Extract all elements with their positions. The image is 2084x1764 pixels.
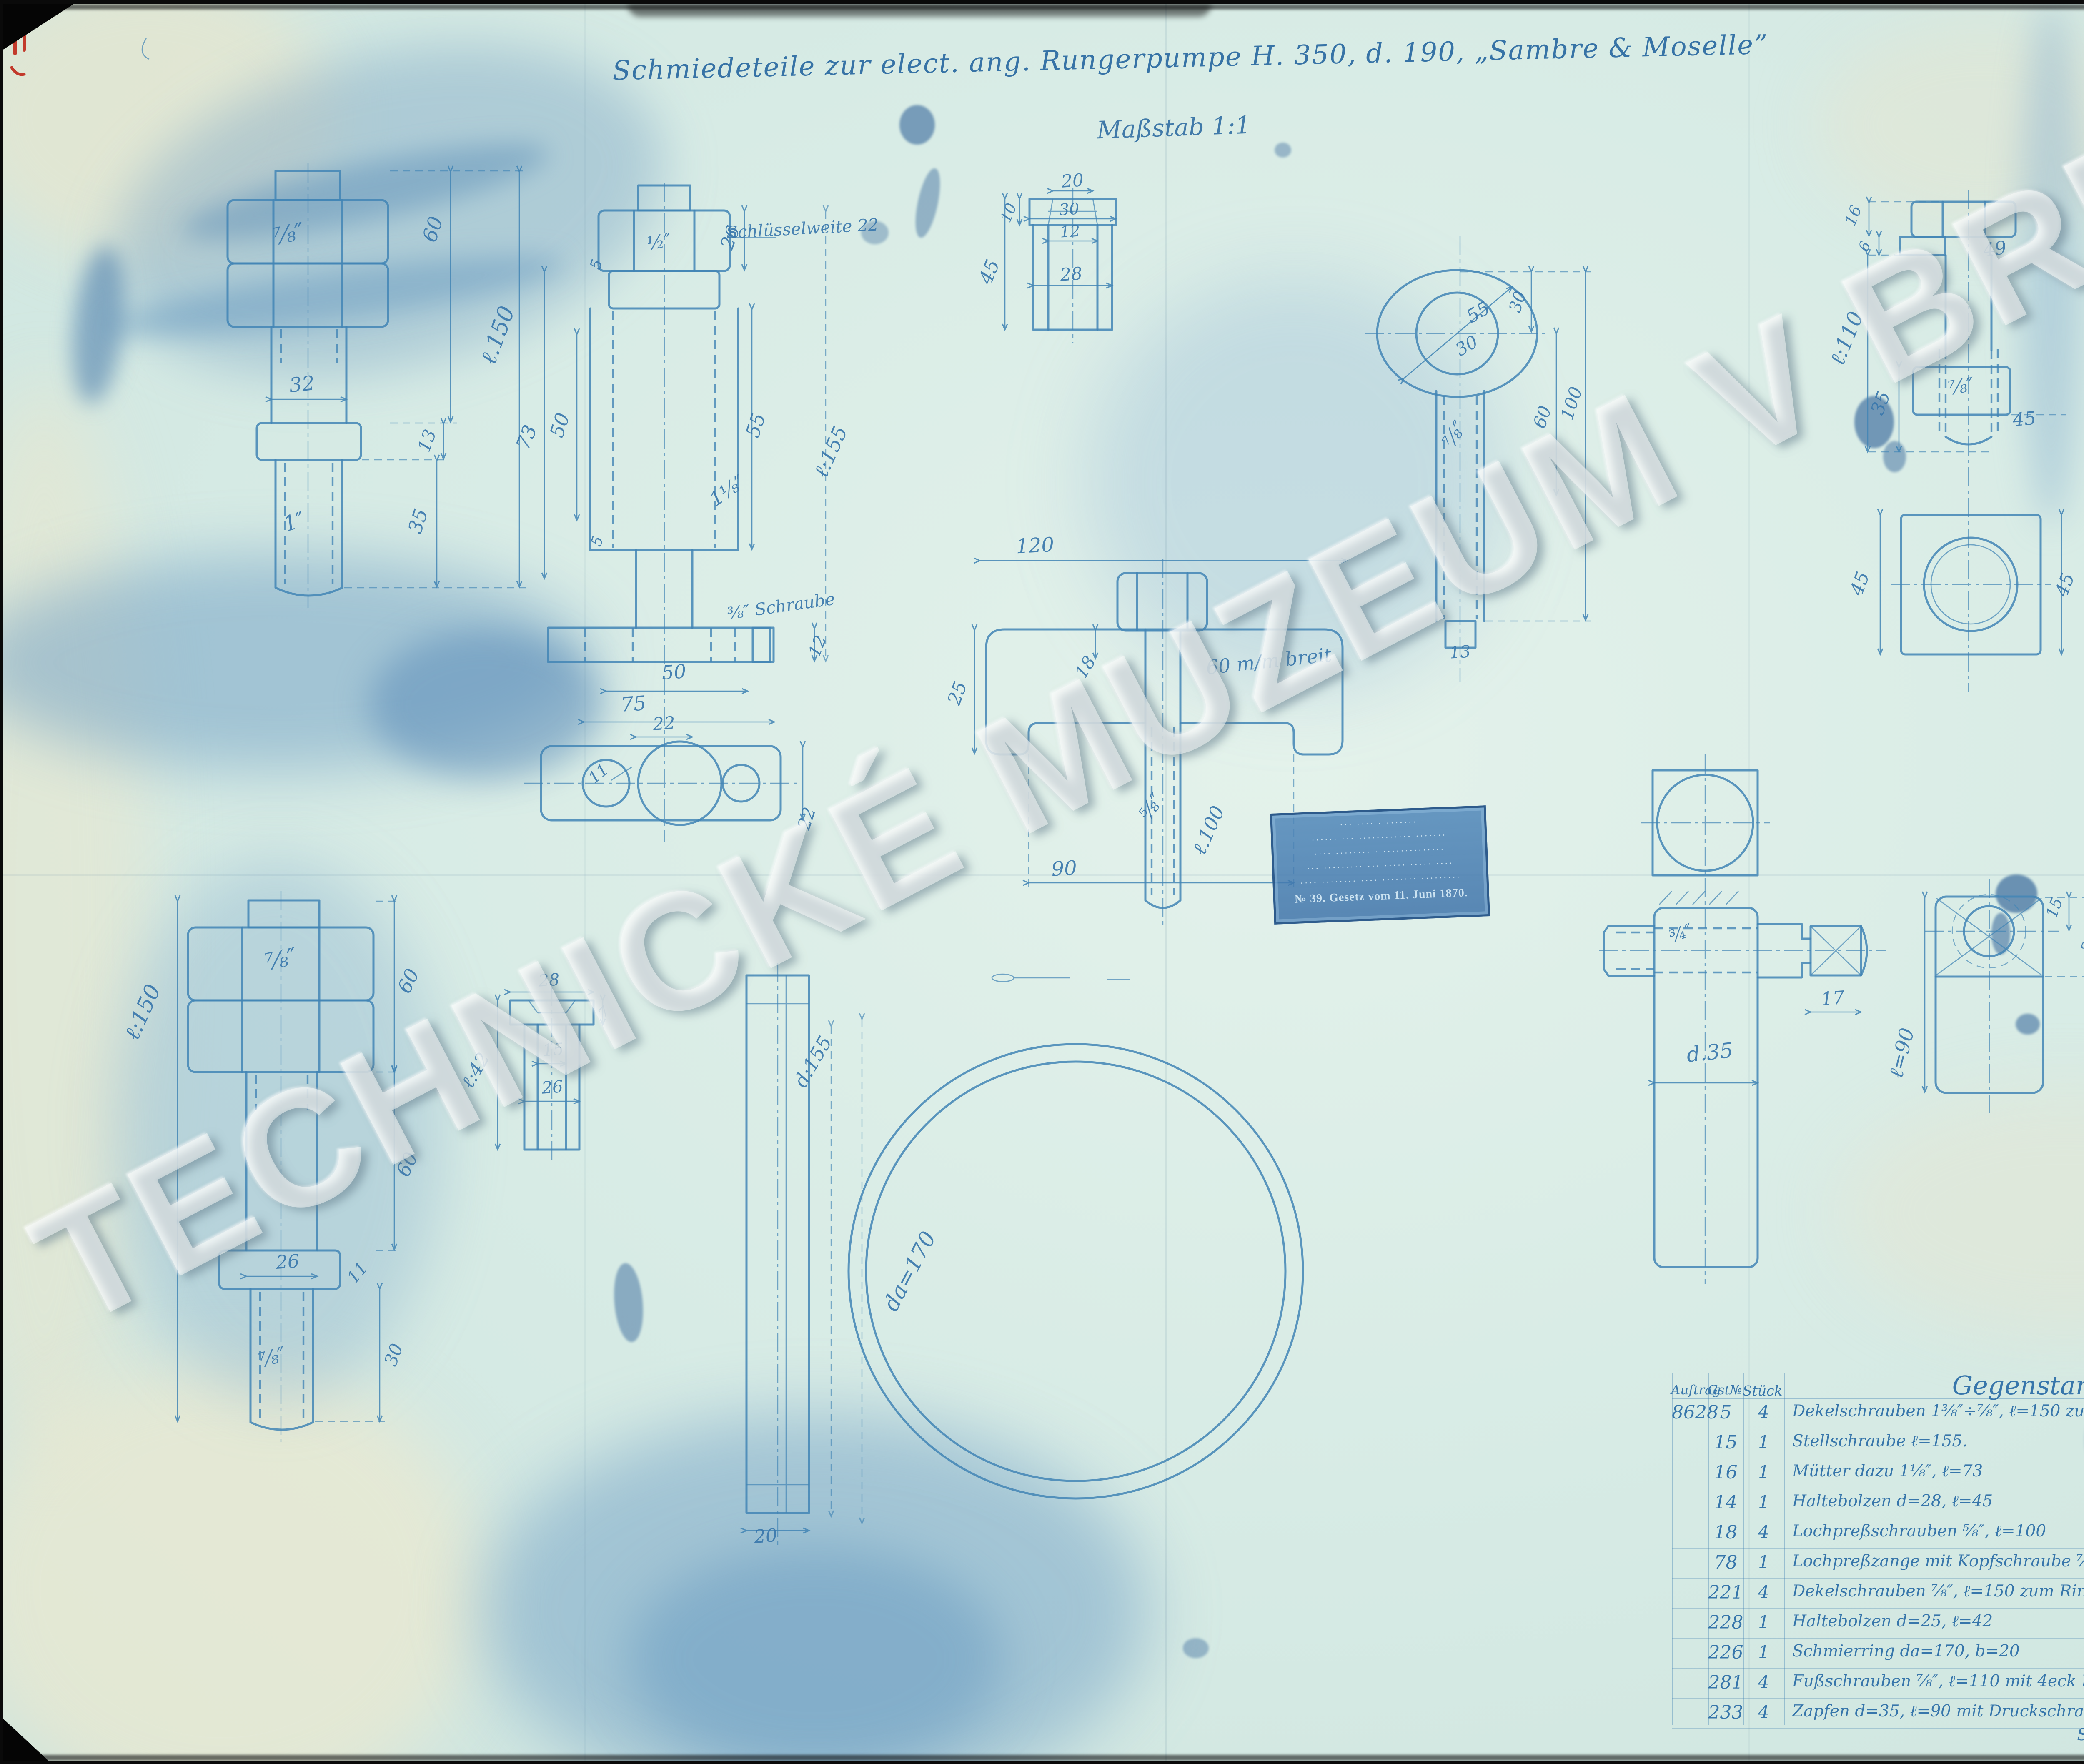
dimension-label: 45 [2011,408,2036,431]
table-row: 862854Dekelschrauben 1⅜″÷⅞″, ℓ=150 zum H… [1672,1398,2084,1428]
cell-auftrag: 8628 [1672,1402,1708,1423]
cell-gstnr: 281 [1708,1672,1743,1693]
dimension-label: 11 [343,1258,372,1287]
dimension-label: 60 [392,1148,423,1180]
cell-stueck: 4 [1743,1582,1784,1602]
table-row: 2334Zapfen d=35, ℓ=90 mit Druckschrauben… [1672,1699,2084,1729]
dimension-label: ⅞″ [1946,373,1976,399]
cell-stueck: 1 [1743,1642,1784,1662]
cell-stueck: 4 [1743,1672,1784,1692]
dimension-label: 10 [997,201,1020,225]
table-row: 184Lochpreßschrauben ⅝″, ℓ=100·Ringschm. [1672,1518,2084,1549]
cell-gstnr: 226 [1708,1642,1743,1663]
dimension-label: ℓ=90 [1884,1026,1919,1080]
table-row: 2814Fußschrauben ⅞″, ℓ=110 mit 4eck Mütt… [1672,1669,2084,1699]
dimension-label: ℓ:150 [120,981,166,1044]
dimension-label: 12 [1059,221,1080,241]
dimension-label: 75 [620,692,647,717]
cell-gstnr: 16 [1708,1462,1743,1483]
drawing-zapfen [1599,754,1886,1284]
dimension-label: 28 [1059,263,1083,285]
cell-gegenstand: Haltebolzen d=25, ℓ=42 [1792,1612,1993,1631]
dimension-label: 30 [1505,289,1530,315]
cell-gegenstand: Haltebolzen d=28, ℓ=45 [1792,1492,1993,1511]
dimension-label: 35 [1867,388,1895,418]
dimension-label: ⅜″ Schraube [726,589,836,624]
table-footer-date: Schmiede den 12. 9. 02 [2018,1725,2084,1744]
cell-gstnr: 221 [1708,1582,1743,1603]
cell-gstnr: 5 [1708,1402,1743,1423]
dimension-label: 26 [275,1250,300,1273]
dimension-label: 60 [418,213,448,245]
cell-gegenstand: Zapfen d=35, ℓ=90 mit Druckschrauben ¾″ [1792,1702,2084,1721]
dimension-label: 26 [541,1077,564,1098]
cell-stueck: 4 [1743,1402,1784,1422]
dimension-label: 13 [413,427,440,455]
dimension-label: 17 [1820,987,1845,1010]
dimension-label: d.35 [1686,1038,1734,1067]
dimension-label: Schlüsselweite 22 [726,215,879,242]
cell-gstnr: 228 [1708,1612,1743,1633]
factory-stamp: ··· ···· · ············· ··· ···········… [1270,805,1490,925]
cell-gegenstand: Dekelschrauben 1⅜″÷⅞″, ℓ=150 zum Hauptla… [1792,1402,2084,1421]
dimension-labels: ⅞″60ℓ.1503213351″½″26Schlüsselweite 2255… [120,170,2084,1548]
dimension-label: 30 [380,1341,407,1369]
drawing-deckelschraube-2 [178,891,401,1442]
dimension-label: 49 [1981,237,2008,261]
drawing-fussschraube [1868,190,2066,692]
dimension-label: ⅝″ [1134,789,1169,824]
dimension-label: 45 [1846,569,1874,599]
dimension-label: 50 [545,410,574,440]
dimension-label: ⅞″ [271,218,307,251]
cell-gstnr: 233 [1708,1702,1743,1723]
dimension-label: ℓ.100 [1188,802,1229,858]
drawing-stellschraube [524,183,826,842]
cell-stueck: 1 [1743,1492,1784,1512]
dimension-label: 5 [587,257,606,271]
cell-gegenstand: Stellschraube ℓ=155. [1792,1432,1968,1451]
drawing-haltebolzen-25 [498,987,603,1163]
table-row: 2281Haltebolzen d=25, ℓ=42„ [1672,1609,2084,1639]
dimension-label: 60 [1529,403,1555,431]
table-row: 781Lochpreßzange mit Kopfschraube ⅞″ zum… [1672,1549,2084,1579]
cell-gstnr: 15 [1708,1432,1743,1453]
dimension-label: 73 [511,422,541,453]
dimension-label: ½″ [645,229,674,255]
cell-gstnr: 14 [1708,1492,1743,1513]
dimension-label: 1⅛″ [705,471,749,511]
dimension-label: 25 [943,679,971,708]
dimension-label: 55 [741,410,770,440]
cell-stueck: 4 [1743,1522,1784,1542]
blueprint-sheet: ⅞″60ℓ.1503213351″½″26Schlüsselweite 2255… [3,4,2084,1761]
dimension-label: 28 [537,970,560,991]
dimension-label: 30 [1452,331,1481,360]
cell-gegenstand: Lochpreßzange mit Kopfschraube ⅞″ zum Kr… [1792,1552,2084,1571]
dimension-label: ¾″ [1666,920,1696,947]
dimension-label: ℓ.150 [475,303,520,368]
cell-gegenstand: Dekelschrauben ⅞″, ℓ=150 zum Ringschmier… [1792,1582,2084,1601]
table-row: 161Mütter dazu 1⅛″, ℓ=73· [1672,1458,2084,1488]
dimension-label: 22 [652,712,676,734]
table-rows: 862854Dekelschrauben 1⅜″÷⅞″, ℓ=150 zum H… [1672,1398,2084,1729]
dimension-label: ℓ:155 [809,423,852,481]
cell-stueck: 4 [1743,1702,1784,1722]
cell-gegenstand: Mütter dazu 1⅛″, ℓ=73 [1792,1462,1983,1481]
dimension-label: 15 [2042,895,2066,920]
dimension-label: 35 [403,506,432,536]
dimension-label: 22 [793,805,819,833]
parts-table: Gegenstand Auftrag Gst№ Stück 862854Deke… [1672,1373,2084,1725]
dimension-label: 60 [393,965,424,997]
cell-stueck: 1 [1743,1552,1784,1572]
dimension-label: 45 [2051,570,2079,600]
dimension-label: d:155 [789,1032,837,1091]
dimension-label: 32 [288,371,316,397]
table-row: 2261Schmierring da=170, b=20„ [1672,1639,2084,1669]
cell-gstnr: 78 [1708,1552,1743,1573]
dimension-label: 60 m/m breit [1205,643,1333,679]
table-row: 151Stellschraube ℓ=155.· [1672,1428,2084,1458]
dimension-label: 6 [1855,239,1874,253]
cell-gstnr: 18 [1708,1522,1743,1543]
dimension-label: 15 [542,1040,564,1060]
dimension-label: 12 [805,633,831,659]
dimension-label: 120 [1015,533,1055,559]
cell-gegenstand: Schmierring da=170, b=20 [1792,1642,2020,1661]
dimension-label: ℓ:110 [1825,308,1868,368]
dimension-label: da=170 [879,1227,941,1315]
corner-marks [12,20,1130,982]
dimension-label: ⅞″ [256,1343,288,1373]
table-header-gegenstand: Gegenstand [1784,1370,2084,1401]
table-header-stueck: Stück [1743,1383,1788,1399]
cell-stueck: 1 [1743,1612,1784,1632]
cell-stueck: 1 [1743,1462,1784,1482]
dimension-label: ⅞″ [263,943,299,976]
dimension-label: 20 [753,1525,778,1548]
dimension-label: 100 [1557,384,1586,422]
cell-gegenstand: Lochpreßschrauben ⅝″, ℓ=100 [1792,1522,2046,1541]
dimension-label: 20 [1060,170,1085,192]
dimension-label: ℓ:42 [457,1049,494,1092]
cell-stueck: 1 [1743,1432,1784,1452]
dimension-label: 90 [1051,856,1077,881]
dimension-label: 16 [1841,203,1865,228]
dimension-label: 35 [2076,928,2084,956]
dimension-label: 30 [1058,199,1080,219]
table-row: 2214Dekelschrauben ⅞″, ℓ=150 zum Ringsch… [1672,1579,2084,1609]
dimension-label: 45 [974,256,1004,288]
dimension-label: 13 [1449,642,1471,662]
dimension-label: 55 [1463,297,1494,327]
table-row: 141Haltebolzen d=28, ℓ=45· [1672,1488,2084,1518]
cell-gegenstand: Fußschrauben ⅞″, ℓ=110 mit 4eck Mütter 4… [1792,1672,2084,1691]
dimension-label: 7 [595,1003,614,1022]
dimension-label: 50 [661,660,687,684]
